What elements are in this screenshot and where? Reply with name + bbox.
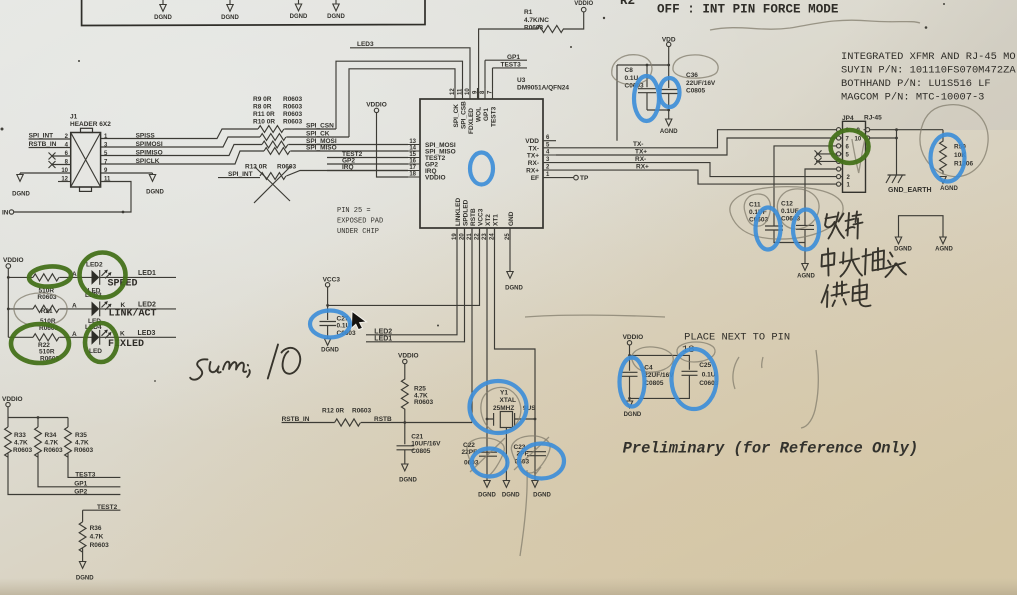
svg-text:RX+: RX+ (526, 168, 539, 175)
svg-text:R0603: R0603 (74, 447, 94, 454)
svg-text:GND: GND (508, 211, 515, 226)
svg-text:IN: IN (2, 210, 9, 217)
svg-text:4.7K: 4.7K (14, 440, 28, 447)
svg-text:C0805: C0805 (411, 448, 431, 455)
svg-text:R0603: R0603 (44, 447, 64, 454)
svg-text:VCC3: VCC3 (323, 277, 341, 284)
svg-text:TEST3: TEST3 (75, 471, 96, 478)
svg-text:DGND: DGND (290, 14, 308, 20)
svg-text:10: 10 (465, 88, 471, 95)
svg-text:4.7K/NC: 4.7K/NC (524, 17, 549, 24)
svg-text:R1: R1 (524, 9, 533, 16)
svg-text:C0805: C0805 (644, 380, 664, 387)
svg-text:R8 0R: R8 0R (253, 104, 272, 111)
svg-text:DGND: DGND (146, 190, 164, 196)
svg-text:AGND: AGND (940, 186, 958, 192)
svg-text:10: 10 (855, 137, 862, 143)
svg-text:R0603: R0603 (13, 447, 33, 454)
svg-text:TX-: TX- (633, 141, 643, 148)
svg-text:HEADER 6X2: HEADER 6X2 (70, 121, 111, 128)
svg-text:U3: U3 (517, 77, 526, 84)
svg-text:EF: EF (531, 175, 539, 182)
svg-text:TX+: TX+ (635, 148, 647, 155)
svg-text:SPI_CSN: SPI_CSN (306, 123, 334, 130)
svg-text:SPI_MISO: SPI_MISO (306, 145, 337, 152)
svg-text:XT1: XT1 (493, 214, 500, 226)
svg-text:SPIMISO: SPIMISO (136, 150, 163, 157)
svg-text:R2: R2 (620, 0, 635, 8)
svg-text:R0603: R0603 (352, 407, 372, 414)
svg-text:16: 16 (409, 159, 416, 165)
svg-text:XT2: XT2 (485, 214, 492, 226)
svg-text:DGND: DGND (221, 15, 239, 21)
svg-text:DGND: DGND (624, 412, 642, 418)
svg-text:BOTHHAND P/N: LU1S516 LF: BOTHHAND P/N: LU1S516 LF (841, 78, 991, 90)
svg-text:RJ-45: RJ-45 (864, 115, 882, 122)
svg-text:EXPOSED PAD: EXPOSED PAD (337, 218, 383, 226)
svg-text:PIN 25 =: PIN 25 = (337, 207, 371, 215)
svg-text:C8: C8 (625, 67, 634, 74)
svg-text:DGND: DGND (502, 492, 520, 498)
svg-text:LED1: LED1 (374, 335, 392, 342)
svg-text:R34: R34 (45, 432, 57, 439)
svg-text:25MHZ: 25MHZ (493, 405, 514, 412)
svg-text:R33: R33 (14, 432, 26, 439)
svg-text:DGND: DGND (154, 15, 172, 21)
svg-text:18: 18 (409, 172, 416, 178)
svg-text:XTAL: XTAL (500, 397, 517, 404)
svg-text:VDDIO: VDDIO (574, 1, 593, 7)
svg-text:R12 0R: R12 0R (322, 407, 344, 414)
svg-text:LED2: LED2 (138, 301, 156, 308)
svg-text:Y1: Y1 (500, 390, 508, 397)
svg-text:Preliminary (for Reference Onl: Preliminary (for Reference Only) (623, 440, 919, 458)
svg-text:DGND: DGND (478, 492, 496, 498)
svg-text:A: A (72, 303, 77, 310)
svg-text:C21: C21 (411, 433, 423, 440)
svg-text:R35: R35 (75, 432, 87, 439)
svg-text:FIXLED: FIXLED (108, 339, 144, 350)
svg-text:K: K (121, 302, 126, 309)
svg-text:R10 0R: R10 0R (253, 119, 275, 126)
svg-text:RX-: RX- (528, 160, 539, 167)
svg-text:14: 14 (409, 146, 416, 152)
svg-text:RSTB: RSTB (374, 416, 392, 423)
svg-text:12: 12 (450, 88, 456, 95)
svg-text:SPISS: SPISS (136, 133, 156, 140)
svg-text:VDDIO: VDDIO (3, 257, 24, 264)
svg-text:UNDER CHIP: UNDER CHIP (337, 228, 379, 236)
svg-text:R0603: R0603 (414, 399, 434, 406)
svg-text:4.7K: 4.7K (75, 440, 89, 447)
svg-text:DGND: DGND (12, 192, 30, 198)
svg-text:R0603: R0603 (283, 96, 303, 103)
svg-text:22UF/16V: 22UF/16V (686, 80, 716, 87)
svg-text:R11 0R: R11 0R (253, 111, 275, 118)
svg-text:LED1: LED1 (138, 270, 156, 277)
svg-text:SPIMOSI: SPIMOSI (136, 141, 163, 148)
svg-text:LED2: LED2 (86, 262, 103, 269)
svg-text:VDDIO: VDDIO (623, 334, 644, 341)
svg-text:R36: R36 (90, 525, 102, 532)
svg-text:C25: C25 (699, 362, 711, 369)
svg-text:WOL: WOL (476, 107, 483, 122)
svg-text:GP2: GP2 (74, 488, 87, 495)
svg-text:J1: J1 (70, 114, 78, 121)
svg-text:11: 11 (458, 88, 464, 95)
svg-text:DGND: DGND (533, 492, 551, 498)
svg-text:TEST3: TEST3 (491, 106, 498, 127)
svg-text:OFF : INT PIN FORCE MODE: OFF : INT PIN FORCE MODE (657, 3, 839, 17)
svg-text:15: 15 (409, 152, 416, 158)
svg-text:LED3: LED3 (138, 330, 156, 337)
svg-text:GP1: GP1 (483, 108, 490, 121)
svg-text:DGND: DGND (894, 247, 912, 253)
svg-text:R0603: R0603 (283, 111, 303, 118)
svg-text:VDDIO: VDDIO (398, 353, 419, 360)
svg-text:GP1: GP1 (74, 481, 87, 488)
svg-text:SPI_CK: SPI_CK (306, 131, 330, 138)
svg-text:DGND: DGND (399, 478, 417, 484)
svg-text:VDDIO: VDDIO (425, 175, 446, 182)
svg-text:DGND: DGND (76, 575, 94, 581)
svg-text:VDDIO: VDDIO (366, 102, 387, 109)
svg-text:17: 17 (409, 165, 416, 171)
svg-text:INTEGRATED XFMR AND RJ-45 MO: INTEGRATED XFMR AND RJ-45 MO (841, 51, 1016, 63)
svg-text:RSTB: RSTB (470, 208, 477, 226)
svg-text:DGND: DGND (505, 286, 523, 292)
svg-text:R0603: R0603 (90, 542, 110, 549)
svg-text:C0805: C0805 (686, 88, 706, 95)
svg-text:TP: TP (580, 175, 589, 182)
svg-text:MAGCOM P/N: MTC-10007-3: MAGCOM P/N: MTC-10007-3 (841, 92, 984, 104)
svg-text:VDD: VDD (525, 138, 539, 145)
svg-text:AGND: AGND (797, 274, 815, 280)
svg-text:0.1U: 0.1U (702, 371, 716, 378)
svg-text:LED: LED (89, 348, 102, 355)
svg-text:VDDIO: VDDIO (2, 396, 23, 403)
svg-text:SUYIN P/N: 101110FS070M472ZA: SUYIN P/N: 101110FS070M472ZA (841, 65, 1016, 77)
svg-text:R21: R21 (41, 308, 53, 315)
svg-text:SPICLK: SPICLK (136, 158, 160, 165)
svg-text:SPDLED: SPDLED (463, 199, 470, 226)
svg-text:SPI_CSB: SPI_CSB (461, 101, 468, 129)
svg-text:R0603: R0603 (283, 104, 303, 111)
svg-text:R9 0R: R9 0R (253, 96, 272, 103)
svg-text:FDXLED: FDXLED (468, 108, 475, 134)
svg-text:DGND: DGND (327, 14, 345, 20)
svg-text:TX-: TX- (529, 145, 539, 152)
svg-text:LED3: LED3 (357, 41, 374, 48)
svg-text:LED2: LED2 (374, 328, 392, 335)
svg-text:4.7K: 4.7K (45, 440, 59, 447)
svg-text:C4: C4 (644, 365, 653, 372)
svg-text:AGND: AGND (935, 247, 953, 253)
svg-text:LINKLED: LINKLED (455, 198, 462, 226)
svg-text:13: 13 (409, 139, 416, 145)
svg-text:TX+: TX+ (527, 153, 539, 160)
svg-text:R0603: R0603 (283, 119, 303, 126)
svg-text:10UF/16V: 10UF/16V (411, 441, 441, 448)
svg-text:DGND: DGND (321, 348, 339, 354)
svg-text:C12: C12 (781, 201, 793, 208)
svg-text:4.7K: 4.7K (90, 534, 104, 541)
svg-text:SPI_CK: SPI_CK (453, 104, 460, 128)
svg-text:R13 0R: R13 0R (245, 164, 267, 171)
svg-text:GND_EARTH: GND_EARTH (888, 187, 932, 194)
svg-text:C11: C11 (749, 202, 761, 209)
svg-text:A: A (72, 331, 77, 338)
svg-text:VCC3: VCC3 (478, 208, 485, 226)
svg-text:DM9051A/QFN24: DM9051A/QFN24 (517, 85, 569, 92)
svg-text:AGND: AGND (660, 129, 678, 135)
svg-text:K: K (120, 330, 125, 337)
